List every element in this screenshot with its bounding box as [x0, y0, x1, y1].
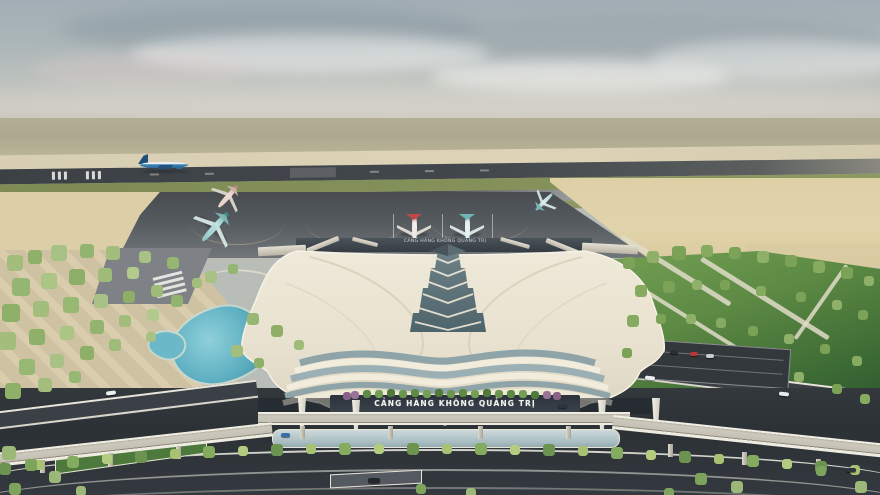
viaduct-pier — [108, 453, 113, 466]
car — [846, 468, 856, 472]
airliner-on-runway — [136, 154, 192, 174]
runway-threshold-mark — [58, 172, 61, 180]
viaduct-pier — [388, 426, 393, 439]
runway-threshold-mark — [98, 171, 101, 179]
viaduct-pier — [566, 426, 571, 439]
viaduct-pier — [742, 452, 747, 465]
car — [281, 433, 290, 437]
car — [690, 352, 698, 356]
runway-centerline — [480, 169, 489, 171]
runway-touchdown-marks — [290, 167, 336, 178]
airport-rendering: CẢNG HÀNG KHÔNG QUẢNG TRỊ — [0, 0, 880, 495]
viaduct-pier — [300, 426, 305, 439]
runway-threshold-mark — [92, 171, 95, 179]
car — [706, 354, 714, 358]
runway-threshold-mark — [52, 172, 55, 180]
viaduct-deck-center — [258, 412, 630, 425]
viaduct-pier — [40, 460, 45, 473]
viaduct-pier — [668, 444, 673, 457]
car — [368, 478, 380, 483]
terminal-front-sign: CẢNG HÀNG KHÔNG QUẢNG TRỊ — [330, 399, 580, 408]
viaduct-pier — [478, 426, 483, 439]
runway-centerline — [205, 173, 214, 175]
car — [670, 350, 678, 354]
cloud — [30, 52, 250, 88]
foreground-shrubs — [0, 0, 2, 2]
runway-centerline — [425, 170, 434, 172]
car — [558, 404, 567, 408]
runway-threshold-mark — [86, 171, 89, 179]
runway-threshold-mark — [64, 172, 67, 180]
viaduct-pier — [176, 446, 181, 459]
runway-centerline — [370, 171, 379, 173]
viaduct-pier — [816, 459, 821, 472]
